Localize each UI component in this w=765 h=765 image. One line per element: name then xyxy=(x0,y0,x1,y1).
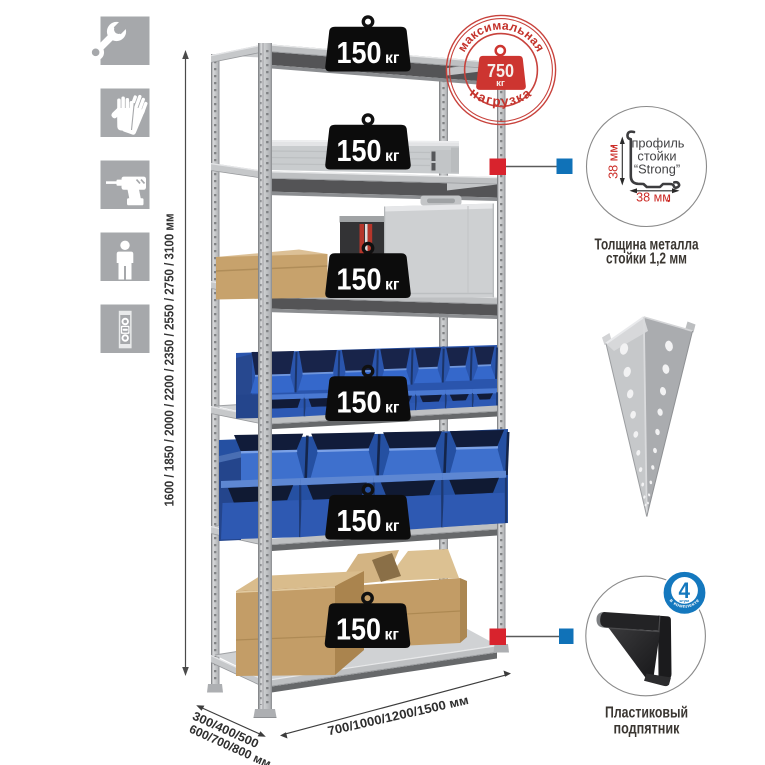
svg-text:700/1000/1200/1500 мм: 700/1000/1200/1500 мм xyxy=(326,693,470,738)
svg-text:стойки 1,2 мм: стойки 1,2 мм xyxy=(606,251,687,268)
svg-text:Пластиковый: Пластиковый xyxy=(605,705,688,722)
svg-text:кг: кг xyxy=(496,78,505,89)
svg-text:штуки: штуки xyxy=(679,599,689,603)
svg-text:подпятник: подпятник xyxy=(614,721,680,738)
svg-text:38 мм: 38 мм xyxy=(636,191,671,205)
svg-text:максимальная: максимальная xyxy=(455,18,548,54)
svg-text:“Strong”: “Strong” xyxy=(634,162,680,177)
svg-text:1600 / 1850 / 2000 / 2200 / 23: 1600 / 1850 / 2000 / 2200 / 2350 / 2550 … xyxy=(163,214,177,507)
svg-text:38 мм: 38 мм xyxy=(607,144,621,179)
